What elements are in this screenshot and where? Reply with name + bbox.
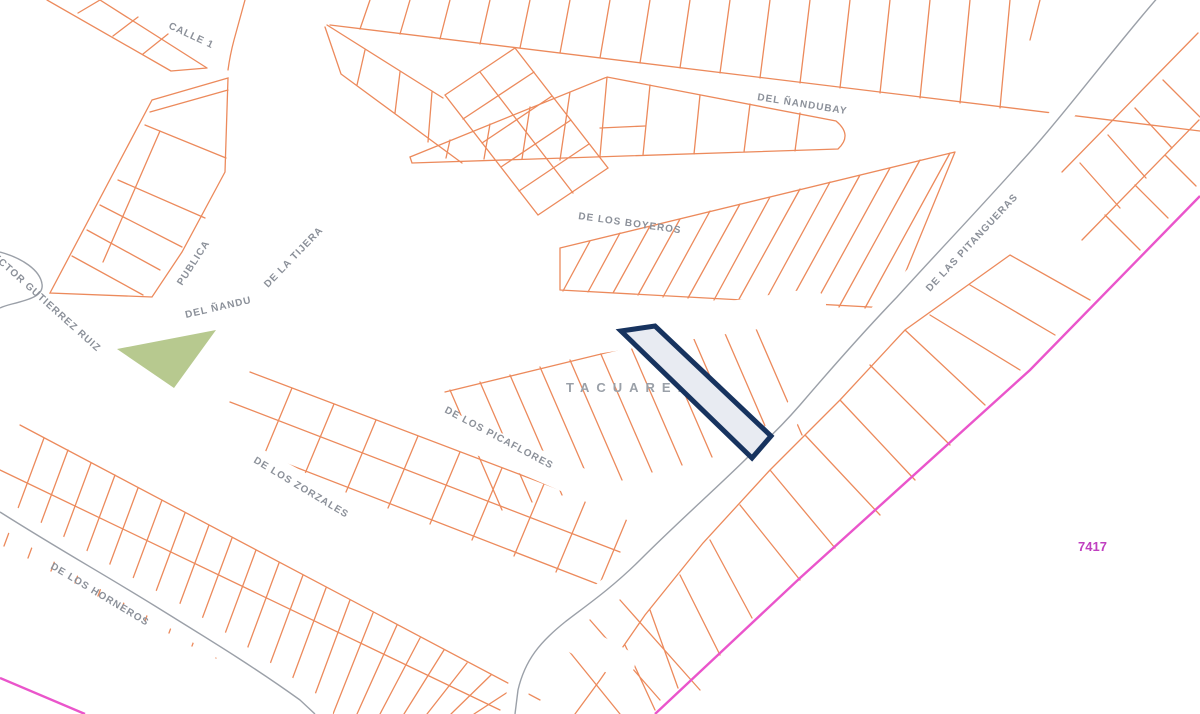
parcel-ref-number: 7417 (1078, 539, 1107, 554)
street-label-nandubay: DEL ÑANDUBAY (757, 90, 849, 117)
map-svg[interactable]: TACUAREMBO CALLE 1 DEL ÑANDUBAY DE LOS B… (0, 0, 1200, 714)
parcel-block-tijera (325, 25, 462, 163)
street-label-tijera: DE LA TIJERA (262, 225, 325, 290)
boundary-magenta-southwest (0, 678, 85, 714)
parcel-block-wedge (410, 77, 845, 163)
street-label-boyeros: DE LOS BOYEROS (578, 211, 683, 236)
street-label-zorzales: DE LOS ZORZALES (251, 455, 350, 521)
street-label-nandu: DEL ÑANDU (184, 293, 253, 321)
street-label-gutierrez-ruiz: HECTOR GUTIERREZ RUIZ (0, 246, 103, 354)
parcel-block-west (50, 0, 245, 297)
cadastral-map-canvas[interactable]: TACUAREMBO CALLE 1 DEL ÑANDUBAY DE LOS B… (0, 0, 1200, 714)
green-space-triangle (117, 330, 216, 388)
